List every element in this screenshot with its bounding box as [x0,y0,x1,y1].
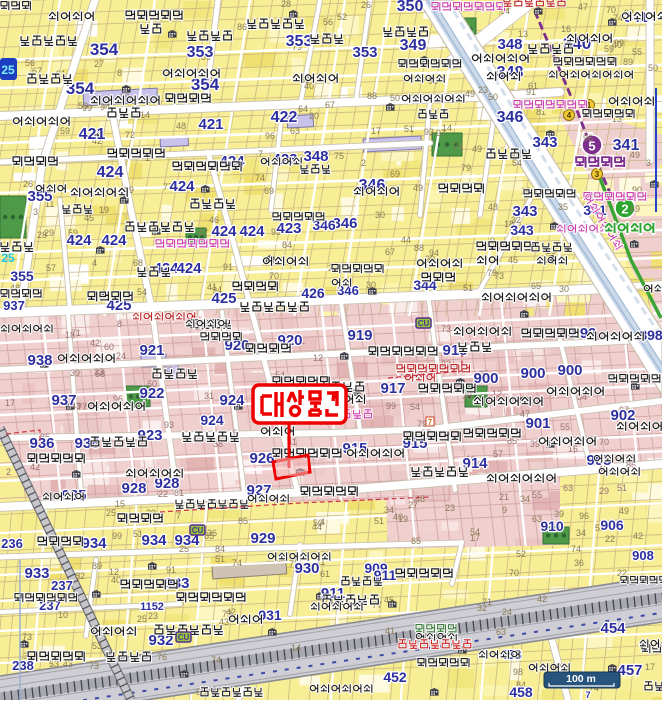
svg-text:CU: CU [178,633,190,642]
svg-text:61: 61 [528,81,538,91]
svg-text:54: 54 [512,158,522,168]
svg-text:72: 72 [125,130,135,140]
svg-text:74: 74 [211,655,221,665]
svg-text:28: 28 [281,0,291,9]
svg-text:42: 42 [90,338,100,348]
svg-text:42: 42 [30,462,40,472]
svg-text:44: 44 [312,522,322,532]
svg-text:73: 73 [441,324,451,334]
svg-text:353: 353 [352,44,377,61]
svg-text:41: 41 [385,626,395,636]
svg-text:61: 61 [320,569,330,579]
svg-text:22: 22 [605,534,615,544]
svg-text:237: 237 [51,578,73,593]
svg-text:25: 25 [1,251,15,265]
svg-text:59: 59 [60,126,70,136]
svg-text:425: 425 [211,290,236,307]
svg-text:7: 7 [585,690,590,700]
svg-text:930: 930 [294,560,319,577]
svg-text:426: 426 [301,285,325,301]
svg-text:17: 17 [5,398,15,408]
svg-text:70: 70 [509,568,519,578]
svg-text:51: 51 [215,554,225,564]
svg-text:99: 99 [614,38,624,48]
svg-text:51: 51 [404,124,414,134]
svg-text:36: 36 [574,558,584,568]
svg-text:60: 60 [104,342,114,352]
svg-text:348: 348 [303,148,328,165]
svg-text:346: 346 [332,215,357,232]
svg-text:424: 424 [169,178,195,195]
svg-text:343: 343 [512,203,537,220]
svg-text:96: 96 [265,131,275,141]
svg-text:14: 14 [442,123,452,133]
svg-text:99: 99 [386,401,396,411]
svg-text:48: 48 [176,121,186,131]
svg-text:51: 51 [463,283,473,293]
svg-text:353: 353 [286,33,313,50]
svg-text:424: 424 [239,223,265,240]
svg-text:85: 85 [411,536,421,546]
svg-text:421: 421 [79,126,106,143]
svg-text:921: 921 [139,342,164,359]
svg-text:99: 99 [112,531,122,541]
svg-text:926: 926 [249,450,274,467]
svg-text:75: 75 [334,151,344,161]
svg-text:2: 2 [361,158,366,168]
svg-text:57: 57 [493,449,503,459]
svg-text:53: 53 [92,641,102,651]
svg-text:3: 3 [646,158,651,168]
svg-text:424: 424 [211,223,237,240]
svg-text:69: 69 [390,169,400,179]
svg-text:67: 67 [385,247,395,257]
svg-text:349: 349 [400,37,427,54]
svg-text:74: 74 [255,173,265,183]
svg-text:7: 7 [428,418,433,427]
svg-text:355: 355 [10,268,34,284]
svg-text:458: 458 [509,684,533,700]
svg-text:17: 17 [645,662,655,672]
svg-text:42: 42 [537,594,547,604]
svg-text:25: 25 [106,508,116,518]
svg-text:91: 91 [166,565,176,575]
svg-text:91: 91 [223,262,233,272]
svg-text:69: 69 [630,204,640,214]
svg-text:69: 69 [264,186,274,196]
svg-text:454: 454 [600,620,626,637]
svg-text:24: 24 [502,607,512,617]
svg-text:421: 421 [198,116,223,133]
svg-text:55: 55 [632,47,642,57]
svg-text:919: 919 [347,327,372,344]
svg-text:26: 26 [361,0,371,10]
svg-text:73: 73 [22,632,32,642]
svg-text:937: 937 [51,392,76,409]
svg-text:14: 14 [140,110,150,120]
svg-text:236: 236 [1,536,23,551]
svg-text:936: 936 [29,435,54,452]
svg-text:48: 48 [488,202,498,212]
svg-text:67: 67 [325,100,335,110]
svg-text:54: 54 [470,527,480,537]
svg-text:30: 30 [375,210,385,220]
svg-text:12: 12 [313,353,323,363]
svg-text:59: 59 [604,44,614,54]
svg-text:8: 8 [117,68,122,78]
svg-text:937: 937 [3,298,25,313]
svg-text:74: 74 [571,544,581,554]
svg-text:16: 16 [568,444,578,454]
svg-text:64: 64 [298,104,308,114]
svg-text:52: 52 [516,549,526,559]
svg-text:1152: 1152 [140,601,164,613]
svg-text:341: 341 [613,137,640,154]
svg-text:25: 25 [137,614,147,624]
svg-text:924: 924 [200,412,224,428]
svg-text:8: 8 [117,319,122,329]
svg-text:19: 19 [99,205,109,215]
svg-text:353: 353 [187,44,214,61]
svg-text:73: 73 [89,661,99,671]
svg-text:27: 27 [94,59,104,69]
svg-text:3: 3 [33,207,38,217]
svg-text:343: 343 [510,222,534,238]
svg-text:50: 50 [488,92,498,102]
svg-text:56: 56 [323,17,333,27]
svg-text:24: 24 [116,351,126,361]
svg-text:73: 73 [494,271,504,281]
svg-text:9: 9 [502,505,507,515]
svg-text:424: 424 [176,260,202,277]
svg-text:52: 52 [337,12,347,22]
svg-text:45: 45 [508,255,518,265]
svg-text:88: 88 [414,243,424,253]
svg-text:17: 17 [371,126,381,136]
svg-text:2: 2 [6,467,11,477]
svg-text:346: 346 [497,109,524,126]
svg-text:928: 928 [121,480,146,497]
svg-text:343: 343 [532,134,557,151]
svg-text:86: 86 [237,22,247,32]
svg-text:933: 933 [24,565,49,582]
svg-text:76: 76 [157,652,167,662]
svg-text:50: 50 [390,93,400,103]
svg-text:48: 48 [415,494,425,504]
svg-text:93: 93 [164,420,174,430]
svg-text:917: 917 [380,380,405,397]
svg-text:424: 424 [66,232,92,249]
svg-text:74: 74 [232,558,242,568]
svg-text:4: 4 [92,258,97,268]
svg-text:63: 63 [563,483,573,493]
svg-text:100 m: 100 m [566,673,596,685]
svg-text:15: 15 [115,499,125,509]
svg-text:929: 929 [250,530,275,547]
svg-text:65: 65 [531,281,541,291]
svg-text:74: 74 [453,142,463,152]
svg-text:79: 79 [461,163,471,173]
svg-text:910: 910 [540,518,564,534]
svg-text:12: 12 [109,567,119,577]
svg-text:93: 93 [424,127,434,137]
svg-text:CU: CU [192,526,204,535]
svg-text:82: 82 [75,571,85,581]
svg-text:21: 21 [499,492,509,502]
svg-text:20: 20 [309,111,319,121]
svg-text:30: 30 [366,280,376,290]
svg-text:63: 63 [496,627,506,637]
svg-text:42: 42 [633,531,643,541]
svg-text:44: 44 [401,235,411,245]
svg-text:25: 25 [1,63,15,77]
svg-text:54: 54 [137,287,147,297]
svg-text:CU: CU [418,319,430,328]
svg-text:57: 57 [46,263,56,273]
svg-text:34: 34 [576,528,586,538]
svg-text:924: 924 [219,392,245,409]
svg-text:31: 31 [204,391,214,401]
svg-text:424: 424 [97,164,124,181]
svg-text:901: 901 [525,415,550,432]
svg-text:99: 99 [82,103,92,113]
svg-text:354: 354 [90,40,119,59]
svg-text:938: 938 [27,352,52,369]
svg-text:96: 96 [579,511,589,521]
svg-text:16: 16 [561,24,571,34]
svg-text:14: 14 [291,643,301,653]
svg-text:906: 906 [600,517,624,533]
svg-text:3: 3 [595,170,600,179]
svg-text:30: 30 [559,284,569,294]
svg-text:4: 4 [567,111,572,120]
svg-text:348: 348 [497,36,522,53]
svg-text:32: 32 [477,603,487,613]
svg-text:934: 934 [81,535,107,552]
svg-text:63: 63 [290,126,300,136]
svg-text:49: 49 [619,506,629,516]
svg-text:50: 50 [648,63,658,73]
svg-text:40: 40 [393,512,403,522]
svg-text:18: 18 [65,330,75,340]
svg-text:85: 85 [238,516,248,526]
svg-text:908: 908 [632,548,654,563]
svg-text:88: 88 [367,91,377,101]
svg-text:934: 934 [141,532,167,549]
svg-text:49: 49 [472,144,482,154]
svg-text:35: 35 [558,202,568,212]
svg-text:84: 84 [215,544,225,554]
svg-text:58: 58 [95,369,105,379]
svg-text:422: 422 [271,109,298,126]
svg-text:96: 96 [583,133,593,143]
svg-text:23: 23 [445,503,455,513]
svg-text:2: 2 [621,202,628,217]
svg-text:900: 900 [520,365,545,382]
svg-text:7: 7 [176,511,181,521]
svg-text:49: 49 [413,183,423,193]
svg-text:45: 45 [384,595,394,605]
svg-text:49: 49 [465,89,475,99]
svg-text:900: 900 [473,370,498,387]
svg-text:70: 70 [269,271,279,281]
svg-text:350: 350 [397,0,424,15]
svg-text:70: 70 [599,437,609,447]
svg-text:28: 28 [37,230,47,240]
svg-text:56: 56 [25,58,35,68]
svg-text:922: 922 [139,385,164,402]
svg-text:54: 54 [410,402,420,412]
svg-text:98: 98 [513,667,523,677]
svg-text:39: 39 [70,368,80,378]
svg-text:84: 84 [282,240,292,250]
svg-text:51: 51 [374,516,384,526]
svg-text:47: 47 [198,228,208,238]
svg-text:51: 51 [617,483,627,493]
svg-text:23: 23 [478,85,488,95]
svg-text:55: 55 [560,422,570,432]
svg-text:424: 424 [101,232,127,249]
svg-text:457: 457 [617,662,642,679]
svg-text:423: 423 [276,220,301,237]
svg-text:47: 47 [578,2,588,12]
svg-text:89: 89 [92,561,102,571]
svg-text:29: 29 [599,486,609,496]
svg-text:34: 34 [520,494,530,504]
svg-text:89: 89 [623,57,633,67]
svg-text:55: 55 [532,490,542,500]
svg-text:452: 452 [383,669,407,685]
svg-text:900: 900 [557,362,582,379]
